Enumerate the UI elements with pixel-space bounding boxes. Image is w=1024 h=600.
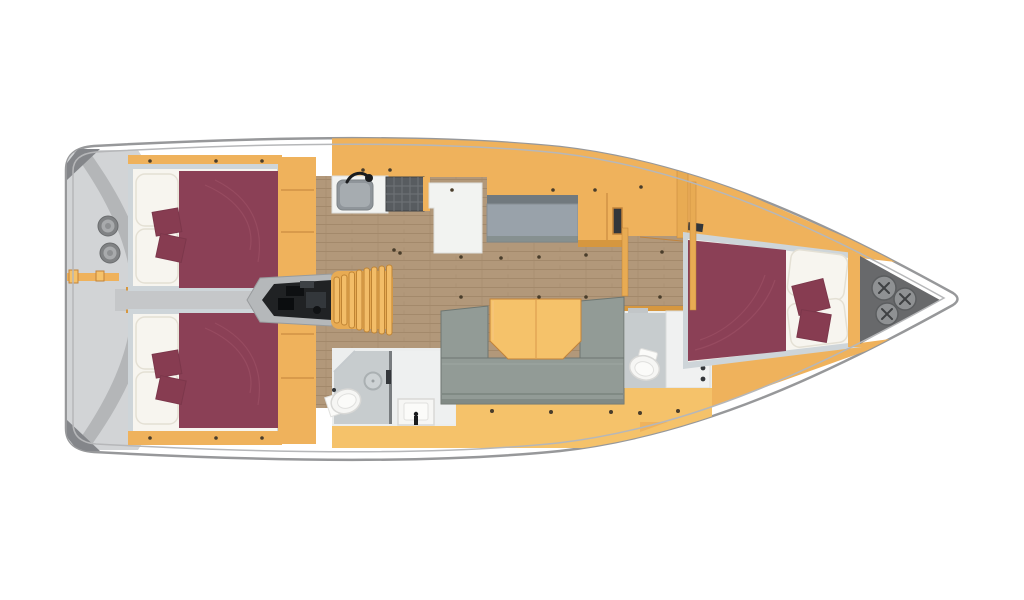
wardrobe-port [278, 157, 316, 291]
engine-room [247, 274, 332, 326]
deck-fitting [894, 288, 916, 310]
headboard-shelf [848, 252, 862, 347]
stove [386, 177, 424, 211]
salon-table [490, 299, 581, 359]
settee-cabinet [487, 136, 578, 196]
throw-pillow [156, 376, 186, 405]
shower-fixture [386, 370, 391, 384]
galley-upper-cabinet [332, 136, 488, 177]
yacht-floor-plan [0, 0, 1024, 600]
throw-pillow [152, 350, 182, 378]
refrigerator-counter [429, 183, 482, 253]
bulkhead-post [690, 182, 696, 310]
companionway-stairs [331, 265, 393, 335]
transom-step-block [96, 271, 104, 281]
aft-cabin-port [128, 155, 282, 291]
throw-pillow [797, 310, 831, 343]
deck-fitting [872, 276, 896, 300]
sofa-right-arm [580, 297, 624, 360]
bed-blanket [688, 240, 786, 361]
winch [98, 216, 118, 236]
sofa-seat [441, 358, 624, 404]
forward-cabin [683, 232, 862, 369]
head-floor-strip [622, 388, 712, 422]
aft-cabin-starboard [128, 309, 282, 445]
sofa-left-arm [441, 306, 488, 360]
wardrobe-starboard [278, 309, 316, 444]
deck-fitting [876, 303, 898, 325]
washbasin [398, 399, 434, 425]
settee-backrest [487, 195, 578, 204]
winch [100, 243, 120, 263]
throw-pillow [156, 234, 186, 263]
floor-plan-drawing [0, 0, 1024, 600]
cabinet-vent [613, 208, 622, 234]
throw-pillow [152, 208, 182, 236]
bulkhead-post [622, 228, 628, 296]
